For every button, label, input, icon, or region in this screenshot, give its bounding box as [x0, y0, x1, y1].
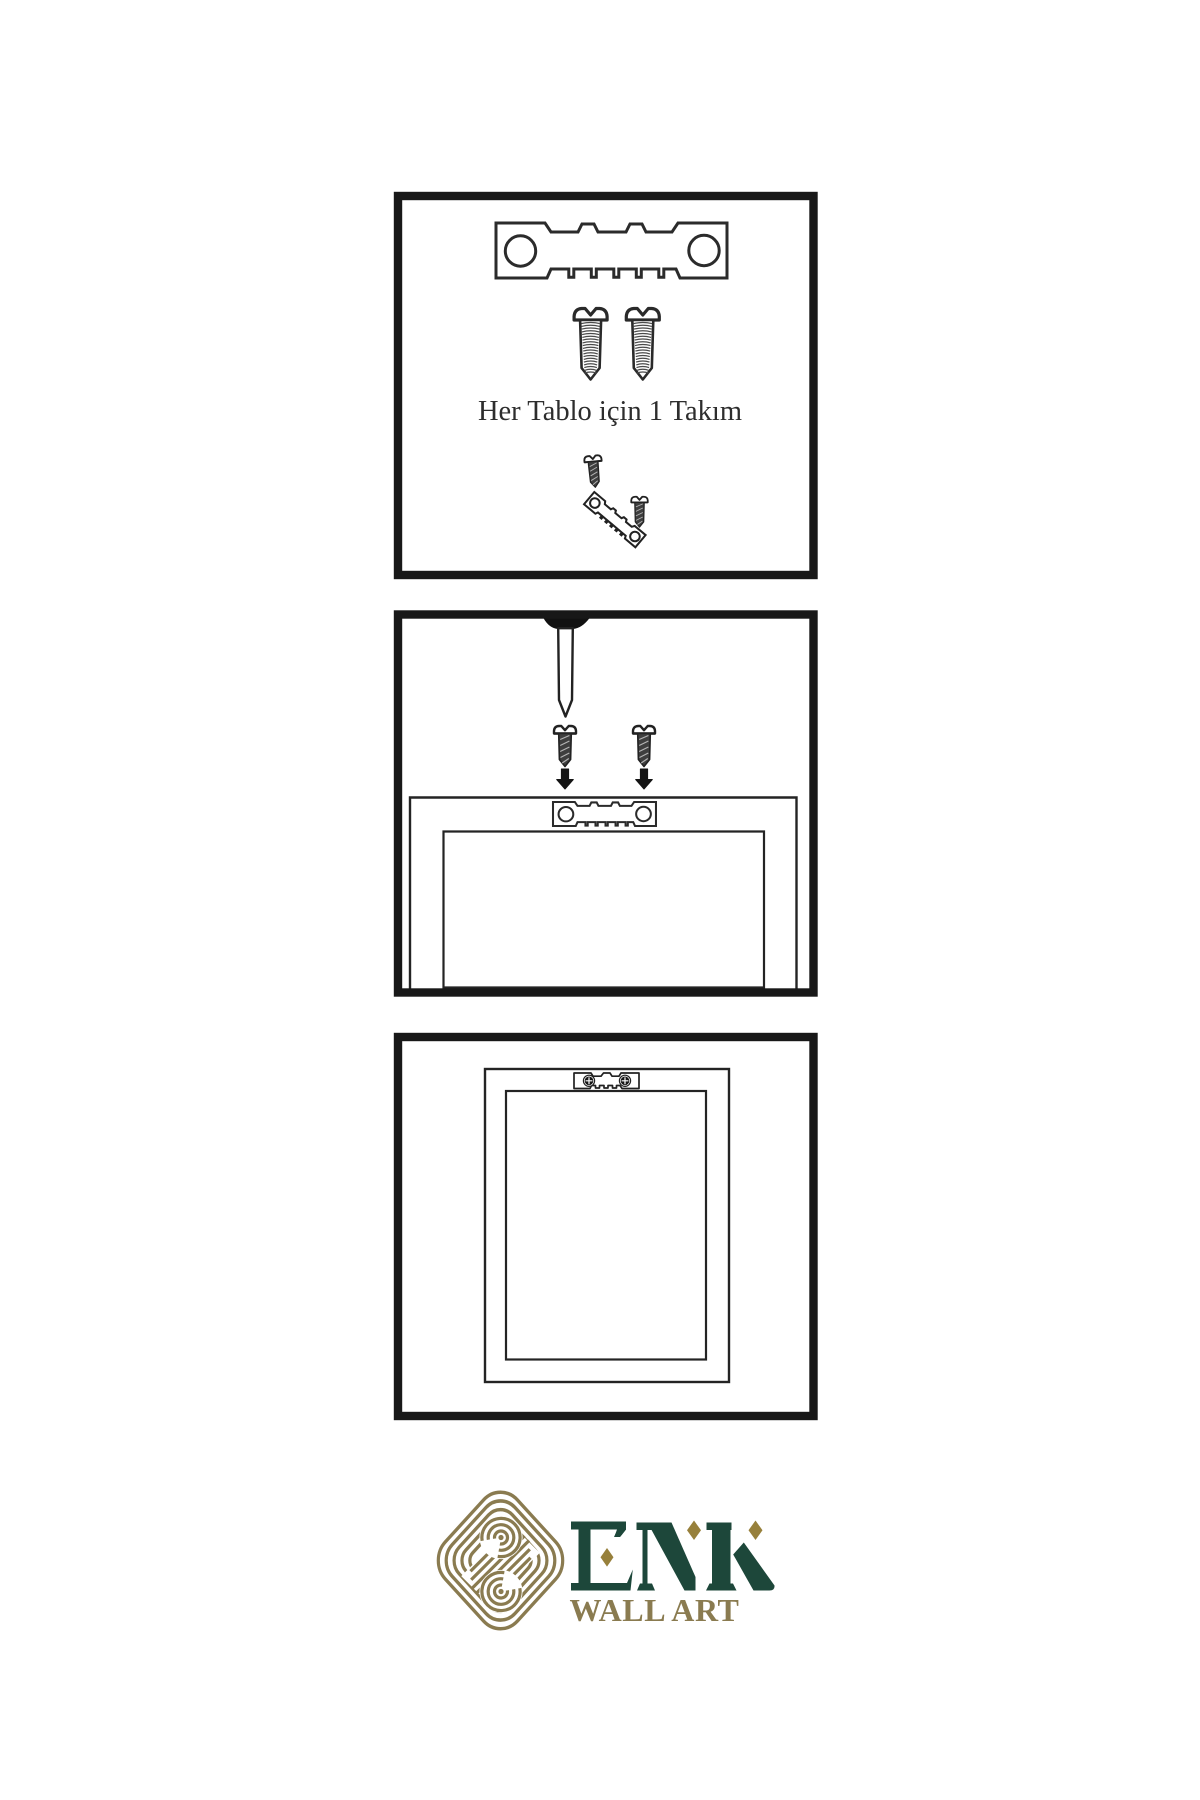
- svg-text:WALL ART: WALL ART: [570, 1592, 740, 1628]
- svg-text:Her Tablo için 1 Takım: Her Tablo için 1 Takım: [478, 396, 742, 427]
